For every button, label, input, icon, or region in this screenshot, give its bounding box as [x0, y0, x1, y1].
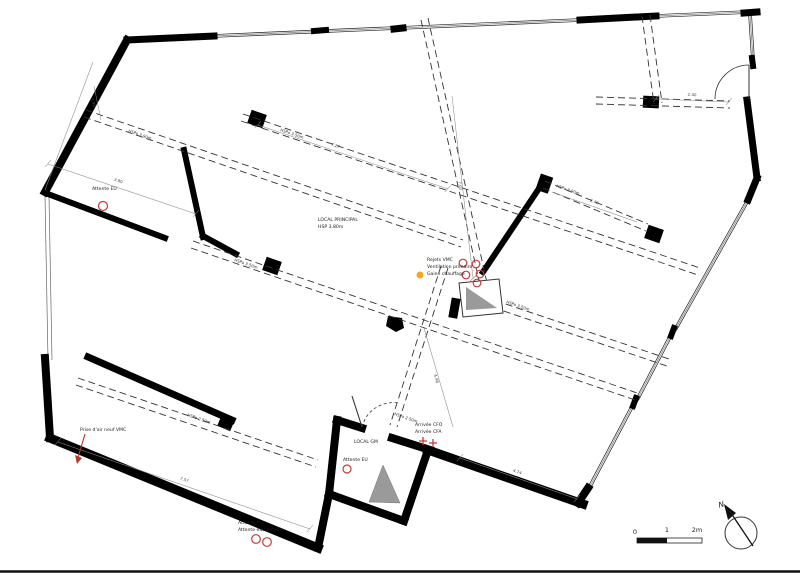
wall-mullion-right-1	[671, 328, 674, 336]
column	[644, 225, 664, 243]
beam-label: HSPo 2.50m	[394, 411, 419, 424]
wall-top-right-pier	[580, 16, 656, 20]
dimension-text: 4.48	[433, 374, 440, 384]
wall-room-tl-return	[203, 236, 236, 254]
room-gm-label: LOCAL GM	[354, 439, 378, 445]
rejets-vmc-label: Rejets VMC	[427, 257, 453, 263]
dimension-text: 7.03	[457, 181, 463, 191]
dimension-text: 7.57	[179, 476, 189, 484]
wall-room-tl-bottom	[48, 194, 165, 238]
wall-gm-left	[329, 420, 337, 494]
attente-eu-marker	[252, 535, 261, 544]
wall-top-mullion-1	[394, 28, 403, 29]
attente-eu-marker	[343, 465, 351, 473]
wall-wing-west	[45, 358, 50, 438]
attente-eu-top-label: Attente EU	[92, 186, 117, 192]
labels: LOCAL PRINCIPAL HSP 3.80m LOCAL GM Rejet…	[80, 92, 697, 533]
wall-top-corner	[744, 12, 757, 13]
floor-plan-drawing: LOCAL PRINCIPAL HSP 3.80m LOCAL GM Rejet…	[0, 0, 800, 577]
door-arc-topright	[715, 65, 749, 99]
wall-northwest	[45, 40, 127, 192]
scale-bar-filled-half	[637, 538, 667, 543]
wall-partition-shaft	[483, 184, 542, 272]
dimension-text: 2.40	[688, 92, 698, 97]
column-blob	[386, 316, 404, 332]
beam-label: HSPo 3.90m	[128, 128, 153, 141]
window-walls	[45, 12, 753, 490]
utility-markers	[75, 202, 484, 547]
gaine-chauffage-label: Gaine chauffage	[427, 271, 465, 277]
beams-dashed	[76, 15, 730, 467]
dimension-text: 2.42	[589, 198, 599, 206]
dimension-text: 3.80	[113, 177, 123, 185]
wall-gm-top-left	[337, 420, 362, 428]
room-principal-label: LOCAL PRINCIPAL	[318, 217, 358, 223]
scale-zero: 0	[633, 528, 637, 536]
vmc-marker	[472, 260, 480, 268]
gaine-chauffage-marker	[417, 272, 424, 279]
prise-air-neuf-label: Prise d'air neuf VMC	[80, 427, 126, 433]
beam-label: HSPo 3.90m	[556, 183, 581, 196]
door-arc-gm	[362, 403, 398, 427]
beam-label: HSPo 2.50m	[187, 412, 212, 425]
walls	[45, 12, 757, 548]
wall-right-tick	[752, 58, 753, 66]
wall-right-upper	[747, 100, 757, 178]
dimension-text: 7.27	[330, 142, 340, 150]
wall-top-left-pier	[127, 36, 214, 40]
attente-eau-potable-label: Attente eau potable	[238, 527, 284, 533]
wall-bottom-right	[428, 450, 583, 504]
doors	[352, 65, 749, 427]
gm-duct-triangle	[369, 465, 400, 503]
wall-room-tl-right	[184, 150, 203, 237]
arrivee-cfa-label: Arrivée CFA	[415, 428, 442, 435]
scale-one: 1	[665, 526, 669, 534]
dimension-text: 4.74	[512, 468, 522, 476]
attente-eu-bottom-label: Attente EU	[238, 520, 263, 526]
wall-gm-top-right	[392, 438, 430, 450]
north-arrow: N	[717, 499, 757, 549]
wall-wing-east	[318, 494, 329, 548]
attente-eau-marker	[263, 538, 272, 547]
dimension-lines	[45, 62, 732, 532]
arrivee-cfo-label: Arrivée CFO	[415, 421, 443, 428]
wall-gm-right	[404, 450, 428, 521]
west-boundary-line	[45, 196, 52, 360]
room-principal-height: HSP 3.80m	[318, 224, 344, 230]
scale-two: 2m	[692, 526, 702, 534]
column	[262, 257, 282, 275]
wall-top-mullion-2	[314, 30, 326, 31]
scale-bar: 0 1 2m	[633, 526, 702, 543]
floor-plan-sheet: LOCAL PRINCIPAL HSP 3.80m LOCAL GM Rejet…	[0, 0, 800, 577]
ventilation-primaire-label: Ventilation primaire	[427, 264, 472, 270]
attente-eu-gm-label: Attente EU	[343, 457, 368, 463]
attente-eu-marker	[99, 202, 108, 211]
column	[448, 297, 460, 318]
wall-right-bend	[748, 178, 757, 200]
